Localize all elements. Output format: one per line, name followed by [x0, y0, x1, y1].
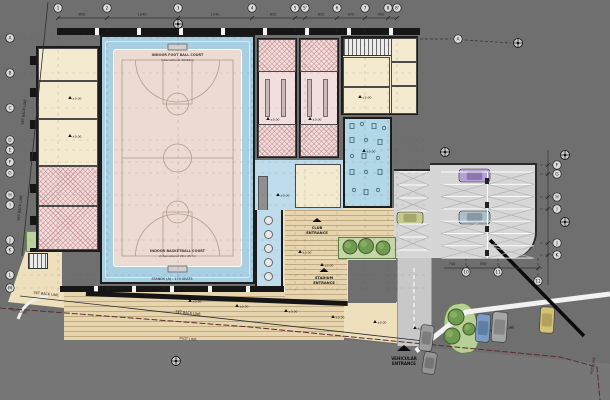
car — [418, 324, 434, 351]
grid-bubble-label: 11 — [495, 270, 501, 276]
dim-text: 850 — [79, 13, 87, 17]
road-edge-white — [416, 294, 610, 351]
gym-equipment-icon — [350, 170, 354, 175]
stands-label: STANDS (A) : 170 SEATS — [151, 277, 192, 281]
grid-bubble-label: E — [9, 148, 12, 154]
grid-bubble-label: H — [555, 195, 558, 201]
setback-label: SET BACK LINE — [21, 99, 28, 125]
grid-bubble-label: 10 — [463, 270, 469, 276]
gym-equipment-icon — [352, 188, 355, 191]
parking-column — [485, 178, 489, 184]
leader-a2 — [465, 40, 511, 43]
setback-line-west — [22, 2, 48, 256]
level-marker-label: ±0.00 — [192, 300, 201, 304]
grid-bubble-label: 7 — [364, 6, 367, 12]
car — [475, 314, 491, 343]
setback-label: SET BACK LINE — [175, 310, 201, 317]
parking-column — [485, 250, 489, 256]
curb-corner-white — [18, 297, 48, 319]
grid-bubble-label: M — [8, 286, 12, 292]
grid-bubble-label: I — [556, 207, 557, 213]
car — [397, 212, 423, 224]
level-marker-label: ±0.00 — [144, 295, 153, 299]
setback-line-south — [20, 296, 424, 341]
section-marker-dot — [175, 360, 178, 363]
grid-bubble-label: 11 — [535, 279, 541, 285]
gym-equipment-icon — [378, 170, 382, 175]
level-marker-label: ±0.00 — [377, 321, 386, 325]
gym-equipment-icon — [360, 122, 363, 125]
level-marker-label: ±0.00 — [366, 150, 375, 154]
tree-highlight — [345, 242, 351, 248]
grid-bubble-label: C — [8, 106, 11, 112]
car-roof — [404, 214, 417, 222]
grid-bubble-label: G — [8, 171, 12, 177]
grid-bubble-label: A — [456, 37, 459, 43]
level-marker-label: ±0.00 — [335, 316, 344, 320]
grid-bubble-label: A — [8, 36, 11, 42]
car-roof — [421, 331, 432, 345]
grid-bubble-label: 5 — [294, 6, 297, 12]
annotation-overlay: INDOOR FOOT BALL COURT (International 40… — [0, 0, 610, 400]
level-marker-label: ±0.00 — [324, 264, 333, 268]
section-marker-dot — [444, 151, 447, 154]
dim-text: 740 — [449, 262, 457, 266]
entrance-arrow-icon — [313, 218, 322, 222]
level-marker-label: ±0.00 — [288, 310, 297, 314]
gym-equipment-icon — [372, 124, 376, 129]
car — [459, 211, 490, 224]
grid-bubble-label: 8 — [387, 6, 390, 12]
goal-bottom — [168, 266, 187, 272]
section-marker-dot — [517, 42, 520, 45]
dim-text: 850 — [270, 13, 278, 17]
car-roof — [493, 319, 505, 335]
gym-equipment-icon — [362, 154, 366, 159]
key-top — [163, 60, 192, 104]
grid-bubble-label: J — [555, 241, 557, 247]
dim-text: 470 — [348, 13, 356, 17]
football-court-title: INDOOR FOOT BALL COURT — [152, 53, 204, 57]
grid-bubble-label: K — [9, 248, 12, 254]
tree-highlight — [465, 325, 470, 330]
car — [421, 351, 437, 375]
grid-bubble-label: 2 — [106, 6, 109, 12]
level-marker-label: ±0.00 — [280, 194, 289, 198]
gym-equipment-icon — [382, 126, 385, 129]
tree-highlight — [446, 330, 453, 337]
court-markings — [122, 44, 233, 272]
dim-text: 1240 — [137, 13, 147, 17]
basketball-court-title: INDOOR BASKETBALL COURT — [150, 249, 206, 253]
basketball-court-sub: (International 28 x 15 m) — [159, 254, 195, 258]
dim-text: 650 — [318, 13, 326, 17]
stadium-entrance-label-2: ENTRANCE — [313, 281, 335, 285]
grid-bubble-label: 5' — [303, 6, 307, 12]
level-marker-label: ±0.00 — [72, 97, 81, 101]
grid-bubble-label: 3 — [177, 6, 180, 12]
car-roof — [542, 313, 553, 327]
section-marker-dot — [564, 221, 567, 224]
football-court-sub: (International 40x22m) — [161, 58, 195, 62]
grid-bubble-label: 6 — [336, 6, 339, 12]
entrance-arrow-icon — [320, 268, 329, 272]
car-roof — [424, 357, 435, 369]
tree-highlight — [378, 243, 384, 249]
level-marker-label: ±0.00 — [302, 251, 311, 255]
dim-text: 1240 — [210, 13, 220, 17]
grid-bubble-label: B — [8, 71, 11, 77]
level-marker-label: ±0.00 — [312, 118, 321, 122]
gym-equipment-icon — [376, 156, 379, 159]
dim-text: 450 — [378, 13, 386, 17]
tree-highlight — [360, 240, 367, 247]
stadium-entrance-label-1: STADIUM — [315, 276, 334, 280]
grid-bubble-label: H — [8, 193, 11, 199]
level-marker-label: ±0.00 — [72, 135, 81, 139]
club-entrance-label-2: ENTRANCE — [306, 231, 328, 235]
gym-equipment-icon — [376, 188, 379, 191]
grid-bubble-label: K — [556, 253, 559, 259]
car-roof — [478, 321, 489, 336]
threept-arc-top — [136, 60, 220, 102]
gym-equipment-icon — [364, 190, 368, 195]
site-plan: INDOOR FOOT BALL COURT (International 40… — [0, 0, 610, 400]
plot-line-label: PLOT LINE — [179, 336, 196, 341]
level-marker-label: ±0.00 — [270, 118, 279, 122]
setback-label: SET BACK LINE — [17, 195, 24, 221]
grid-bubble-label: I — [9, 203, 10, 209]
grid-bubble-label: J — [8, 238, 10, 244]
parking-column — [485, 226, 489, 232]
section-marker-dot — [564, 154, 567, 157]
grid-bubble-label: G — [555, 172, 559, 178]
tree-highlight — [450, 311, 457, 318]
grid-bubble-label: 4 — [251, 6, 254, 12]
plot-line — [0, 308, 600, 400]
level-marker-label: ±0.00 — [362, 96, 371, 100]
car — [491, 312, 508, 343]
entrance-arrow-icon — [397, 345, 411, 351]
section-marker-dot — [177, 23, 180, 26]
club-entrance-label-1: CLUB — [312, 226, 323, 230]
gym-equipment-icon — [350, 154, 353, 157]
car — [539, 307, 554, 334]
parking-column — [485, 202, 489, 208]
level-marker-label: ±0.00 — [239, 305, 248, 309]
gym-equipment-icon — [350, 124, 354, 129]
plot-line-label: PLOT LINE — [590, 357, 597, 375]
vehicular-entrance-label-2: ENTRANCE — [392, 361, 416, 366]
dim-text: 550 — [480, 262, 488, 266]
grid-bubble-label: 1 — [57, 6, 60, 12]
grid-bubble-label: 8' — [395, 6, 399, 12]
car-roof — [467, 213, 483, 222]
goal-top — [168, 44, 187, 50]
